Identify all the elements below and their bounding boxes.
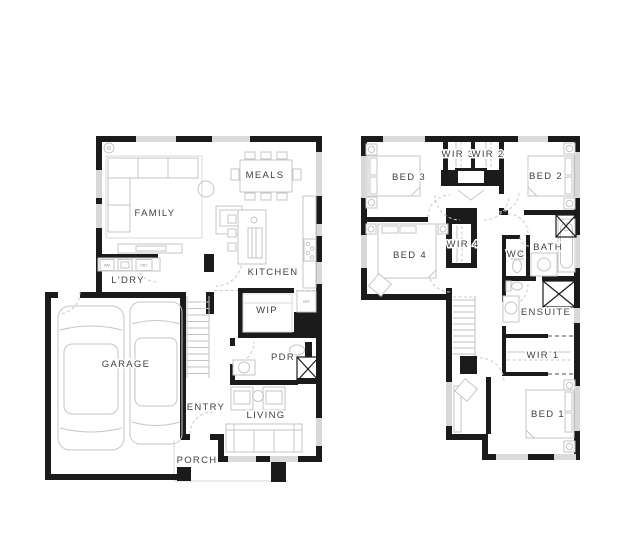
upper-floor-plan: BED 3 WIR 3 WIR 2 BED 2 BED 4 WIR 4 WC B…: [361, 136, 580, 460]
room-label-wir2: WIR 2: [472, 149, 505, 160]
ground-floor-plan: WM DRY REF: [45, 136, 322, 482]
upper-floor-doors: [428, 192, 529, 382]
fridge-label: REF: [303, 300, 310, 304]
car-left: [58, 306, 124, 450]
floor-plans-canvas: WM DRY REF: [0, 0, 639, 536]
room-label-wir3: WIR 3: [442, 149, 475, 160]
car-right: [130, 302, 182, 444]
washer-label: WM: [104, 264, 110, 268]
laundry-bench-group: WM DRY: [98, 258, 160, 271]
room-label-bed4: BED 4: [393, 250, 427, 261]
ground-floor-labels: FAMILY MEALS KITCHEN L'DRY WIP PDR GARAG…: [102, 170, 299, 466]
room-label-bath: BATH: [533, 242, 563, 253]
room-label-wc: WC: [507, 249, 525, 260]
room-label-wip: WIP: [256, 305, 278, 316]
dryer-label: DRY: [140, 264, 148, 268]
kitchen-bench-group: [303, 196, 316, 288]
room-label-meals: MEALS: [246, 170, 285, 181]
room-label-wir4: WIR 4: [447, 239, 480, 250]
room-label-garage: GARAGE: [102, 359, 150, 370]
room-label-bed1: BED 1: [531, 409, 565, 420]
hall-furniture: [454, 379, 477, 432]
staircase-ground: [187, 296, 209, 378]
room-label-wir1: WIR 1: [527, 350, 560, 361]
family-sofa-group: [104, 143, 242, 253]
room-label-laundry: L'DRY: [111, 275, 144, 286]
room-label-kitchen: KITCHEN: [248, 267, 299, 278]
room-label-bed2: BED 2: [529, 171, 563, 182]
room-label-porch: PORCH: [177, 455, 218, 466]
kitchen-island-group: [228, 210, 266, 264]
staircase-upper: [453, 296, 475, 356]
room-label-living: LIVING: [247, 410, 286, 421]
room-label-family: FAMILY: [135, 208, 176, 219]
room-label-bed3: BED 3: [392, 172, 426, 183]
floor-plan-image: WM DRY REF: [0, 0, 639, 536]
room-label-pdr: PDR: [271, 352, 295, 363]
room-label-ensuite: ENSUITE: [521, 307, 571, 318]
room-label-entry: ENTRY: [187, 402, 226, 413]
